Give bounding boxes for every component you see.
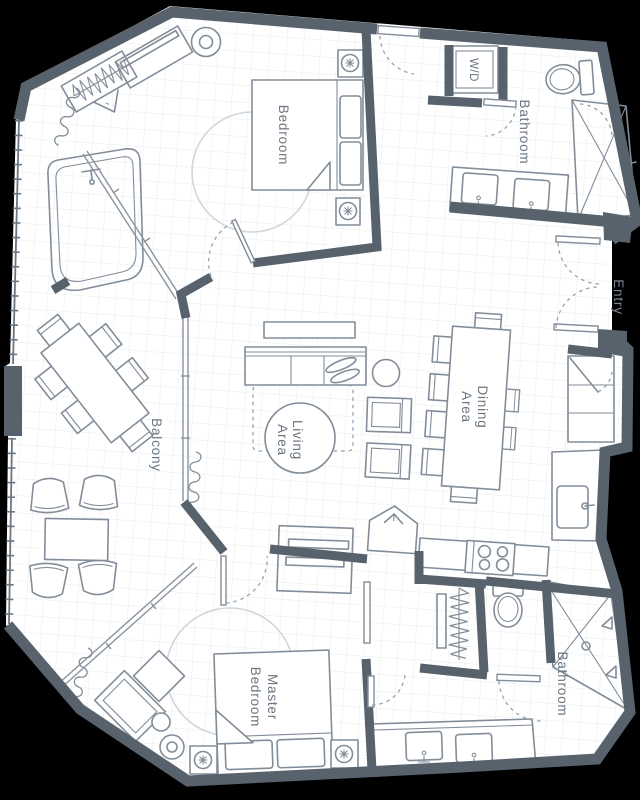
living-side-table [373, 360, 400, 387]
dining-area-label-line1: Dining [475, 385, 490, 428]
entry-label: Entry [611, 279, 626, 315]
balcony-label: Balcony [149, 418, 164, 472]
hallway-sliding-door [364, 582, 370, 643]
bathroom-top-label: Bathroom [517, 100, 532, 165]
master-nightstand-left [190, 746, 217, 774]
bathroom-bottom-label: Bathroom [555, 652, 570, 717]
entry-closet [568, 356, 614, 442]
bedroom-stool [192, 28, 221, 57]
bedroom-bed [252, 80, 363, 190]
master-bedroom-label-line2: Bedroom [248, 667, 263, 727]
living-console [264, 322, 355, 338]
living-area-label-line1: Living [290, 420, 305, 460]
bathroom-bottom-toilet [493, 583, 523, 627]
master-bedroom-label-line1: Master [265, 674, 280, 720]
floor-plan-page: Bedroom W/D Bathroom Entry Dining Area L… [0, 0, 640, 800]
living-area-label-line2: Area [275, 424, 290, 456]
bedroom-label: Bedroom [276, 105, 291, 165]
living-armchair-2 [365, 443, 411, 479]
bedroom-nightstand-bottom [336, 198, 360, 225]
living-armchair-1 [366, 397, 411, 433]
master-nightstand-right [331, 740, 358, 768]
living-sofa [245, 347, 366, 385]
wd-label: W/D [467, 58, 479, 82]
floor-plan-svg: Bedroom W/D Bathroom Entry Dining Area L… [0, 0, 640, 800]
bedroom-nightstand-top [338, 50, 363, 77]
dining-area-label-line2: Area [459, 391, 474, 423]
kitchen-stove [465, 540, 515, 575]
